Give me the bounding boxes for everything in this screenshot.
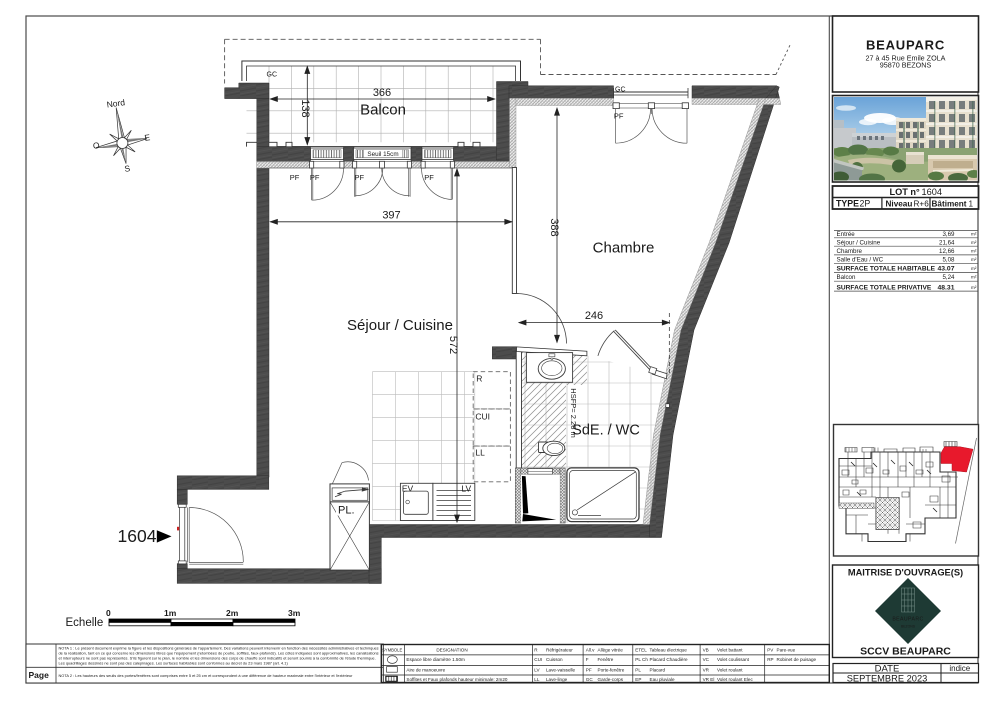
svg-text:LL: LL xyxy=(475,448,485,458)
svg-text:RP: RP xyxy=(767,657,773,662)
svg-text:Volet roulant: Volet roulant xyxy=(717,668,743,673)
svg-text:BEAUPARC: BEAUPARC xyxy=(892,617,923,623)
svg-text:Volet coulissant: Volet coulissant xyxy=(717,657,750,662)
svg-text:Fenêtre: Fenêtre xyxy=(598,657,614,662)
svg-text:Séjour / Cuisine: Séjour / Cuisine xyxy=(837,239,881,246)
svg-text:LL: LL xyxy=(534,677,540,682)
svg-text:PL.: PL. xyxy=(338,504,355,516)
svg-text:366: 366 xyxy=(373,87,391,99)
svg-text:PF: PF xyxy=(614,112,624,121)
svg-text:2m: 2m xyxy=(226,608,239,618)
svg-text:PF: PF xyxy=(586,668,592,673)
svg-text:PF: PF xyxy=(355,173,365,182)
svg-text:ETEL: ETEL xyxy=(635,648,647,653)
svg-text:Aire de manoeuvre: Aire de manoeuvre xyxy=(406,668,445,673)
svg-text:Garde-corps: Garde-corps xyxy=(598,677,624,682)
svg-text:EP: EP xyxy=(635,677,641,682)
svg-text:572: 572 xyxy=(447,336,459,354)
svg-text:Placard: Placard xyxy=(650,668,666,673)
svg-text:43.07: 43.07 xyxy=(937,266,954,273)
svg-text:Lave-vaisselle: Lave-vaisselle xyxy=(546,668,576,673)
svg-text:397: 397 xyxy=(382,209,400,221)
svg-text:TYPE: TYPE xyxy=(836,198,859,208)
svg-text:m²: m² xyxy=(971,240,977,245)
svg-text:Page: Page xyxy=(29,670,50,680)
svg-text:CUI: CUI xyxy=(475,411,490,421)
svg-text:R: R xyxy=(476,373,482,383)
svg-text:138: 138 xyxy=(299,99,311,117)
svg-text:Echelle: Echelle xyxy=(66,617,104,629)
svg-text:Allège vitrée: Allège vitrée xyxy=(598,648,624,653)
svg-text:Robinet de puisage: Robinet de puisage xyxy=(777,657,817,662)
svg-text:Chambre: Chambre xyxy=(593,240,655,257)
svg-text:PF: PF xyxy=(424,173,434,182)
svg-text:21,64: 21,64 xyxy=(939,239,955,246)
svg-text:SURFACE TOTALE PRIVATIVE: SURFACE TOTALE PRIVATIVE xyxy=(837,284,932,291)
svg-text:Cuisson: Cuisson xyxy=(546,657,563,662)
svg-text:5,08: 5,08 xyxy=(942,257,955,264)
svg-text:3,69: 3,69 xyxy=(942,231,955,238)
svg-text:SCCV BEAUPARC: SCCV BEAUPARC xyxy=(860,646,951,658)
svg-text:EV: EV xyxy=(402,484,414,494)
svg-text:Eau pluviale: Eau pluviale xyxy=(650,677,675,682)
svg-text:PV: PV xyxy=(767,648,774,653)
svg-text:Lave-linge: Lave-linge xyxy=(546,677,568,682)
svg-text:PF: PF xyxy=(310,173,320,182)
svg-text:PL Ch: PL Ch xyxy=(635,657,648,662)
svg-text:R+6: R+6 xyxy=(914,199,930,208)
svg-text:indice: indice xyxy=(949,664,970,673)
svg-text:Balcon: Balcon xyxy=(360,102,406,119)
svg-text:BEZONS: BEZONS xyxy=(901,625,916,629)
svg-text:LV: LV xyxy=(534,668,540,673)
svg-text:Bâtiment: Bâtiment xyxy=(932,199,967,208)
svg-text:F: F xyxy=(586,657,589,662)
svg-text:VC: VC xyxy=(703,657,710,662)
svg-text:1: 1 xyxy=(969,199,974,208)
svg-text:Porte-fenêtre: Porte-fenêtre xyxy=(598,668,625,673)
svg-text:GC: GC xyxy=(267,72,278,79)
svg-text:12,66: 12,66 xyxy=(939,248,955,255)
svg-text:5,24: 5,24 xyxy=(942,274,955,281)
svg-text:Niveau: Niveau xyxy=(886,199,913,208)
svg-text:MAITRISE D'OUVRAGE(S): MAITRISE D'OUVRAGE(S) xyxy=(848,568,963,578)
svg-text:BEAUPARC: BEAUPARC xyxy=(866,38,945,53)
svg-text:m²: m² xyxy=(971,232,977,237)
svg-text:246: 246 xyxy=(585,310,603,322)
svg-text:Placard Chaudière: Placard Chaudière xyxy=(650,657,688,662)
svg-text:95870 BEZONS: 95870 BEZONS xyxy=(880,61,932,70)
svg-text:SURFACE TOTALE HABITABLE: SURFACE TOTALE HABITABLE xyxy=(837,266,936,273)
svg-text:1604: 1604 xyxy=(118,526,157,546)
svg-text:m²: m² xyxy=(971,248,977,253)
svg-text:388: 388 xyxy=(548,218,560,236)
svg-text:Chambre: Chambre xyxy=(837,248,863,255)
svg-text:1604: 1604 xyxy=(922,187,942,197)
svg-text:Tableau électrique: Tableau électrique xyxy=(650,648,688,653)
svg-text:Séjour / Cuisine: Séjour / Cuisine xyxy=(347,317,453,334)
svg-text:GC: GC xyxy=(615,87,626,94)
svg-text:SEPTEMBRE 2023: SEPTEMBRE 2023 xyxy=(847,673,928,683)
svg-text:m²: m² xyxy=(971,257,977,262)
svg-text:Volet battant: Volet battant xyxy=(717,648,743,653)
svg-text:m²: m² xyxy=(971,275,977,280)
svg-text:PF: PF xyxy=(290,173,300,182)
svg-text:Salle d'Eau / WC: Salle d'Eau / WC xyxy=(837,257,884,264)
svg-text:GC: GC xyxy=(586,677,594,682)
svg-text:1m: 1m xyxy=(164,608,177,618)
svg-text:0: 0 xyxy=(106,608,111,618)
svg-text:Entrée: Entrée xyxy=(837,231,856,238)
svg-text:VR: VR xyxy=(703,668,710,673)
svg-text:Espace libre diamètre 1.50m: Espace libre diamètre 1.50m xyxy=(406,657,465,662)
svg-text:m²: m² xyxy=(971,266,977,271)
svg-text:PL: PL xyxy=(635,668,641,673)
svg-text:DESIGNATION: DESIGNATION xyxy=(436,648,467,653)
svg-text:Seuil 15cm: Seuil 15cm xyxy=(367,151,398,158)
svg-text:Volet roulant Elec: Volet roulant Elec xyxy=(717,677,753,682)
svg-text:Balcon: Balcon xyxy=(837,274,856,281)
svg-text:All.v: All.v xyxy=(586,648,595,653)
svg-text:Réfrigérateur: Réfrigérateur xyxy=(546,648,573,653)
svg-text:VR El: VR El xyxy=(703,677,715,682)
svg-text:SdE. / WC: SdE. / WC xyxy=(572,423,640,439)
svg-text:Les quadrillages dessinés ne s: Les quadrillages dessinés ne sont pas de… xyxy=(59,660,289,665)
svg-text:VB: VB xyxy=(703,648,709,653)
svg-text:Soffites et Faux plafonds haut: Soffites et Faux plafonds hauteur minima… xyxy=(406,677,507,682)
svg-text:Pare-vue: Pare-vue xyxy=(777,648,796,653)
svg-text:2P: 2P xyxy=(860,198,871,208)
svg-text:m²: m² xyxy=(971,285,977,290)
svg-text:NOTA 2 : Les hauteurs des seui: NOTA 2 : Les hauteurs des seuils des por… xyxy=(59,673,354,678)
svg-text:LOT n°: LOT n° xyxy=(890,187,921,197)
svg-text:3m: 3m xyxy=(288,608,301,618)
svg-text:48.31: 48.31 xyxy=(937,284,954,291)
svg-text:CUI: CUI xyxy=(534,657,542,662)
svg-text:SYMBOLE: SYMBOLE xyxy=(382,648,402,653)
svg-text:LV: LV xyxy=(461,484,471,494)
